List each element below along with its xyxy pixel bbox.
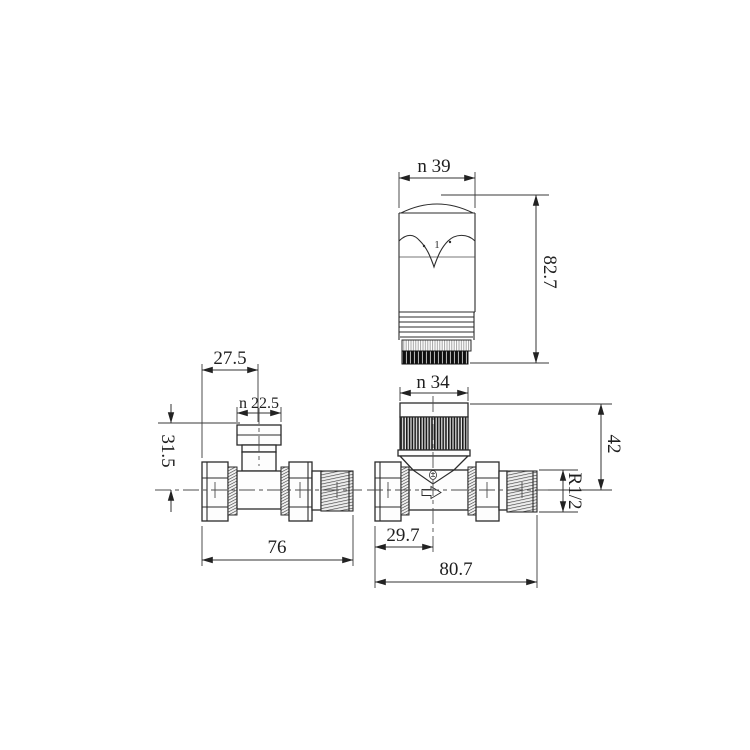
dim-collar-diameter: n 34 bbox=[400, 372, 468, 401]
dim-label-collar-diameter: n 34 bbox=[416, 372, 450, 393]
dim-label-body-offset: 29.7 bbox=[386, 525, 419, 546]
body-left-compression-ring bbox=[401, 467, 409, 515]
drawing-svg: 1 bbox=[0, 0, 750, 750]
dim-label-head-height: 82.7 bbox=[539, 255, 560, 288]
thermostatic-head: 1 bbox=[399, 204, 475, 364]
dim-label-tail-height: 31.5 bbox=[157, 434, 178, 467]
dim-head-diameter: n 39 bbox=[399, 156, 475, 208]
trv-body bbox=[375, 403, 537, 521]
head-setting-mark: 1 bbox=[434, 239, 440, 251]
dim-label-head-diameter: n 39 bbox=[417, 156, 450, 177]
head-grip-band bbox=[402, 340, 471, 351]
dim-lockshield-length: 76 bbox=[202, 515, 353, 566]
dimensions: n 39 82.7 n 34 42 R1/2 bbox=[157, 156, 624, 588]
lockshield-valve bbox=[202, 425, 353, 521]
head-black-knurl-ring bbox=[402, 351, 468, 364]
dim-label-lockshield-length: 76 bbox=[268, 537, 287, 558]
body-reducer bbox=[499, 471, 507, 510]
head-dot-right bbox=[449, 241, 451, 243]
dim-label-body-length: 80.7 bbox=[439, 559, 472, 580]
head-dome bbox=[401, 204, 473, 213]
lockshield-reducer bbox=[312, 471, 321, 510]
head-dot-left bbox=[423, 245, 425, 247]
dim-head-height: 82.7 bbox=[441, 195, 560, 363]
dim-label-tail-diameter: n 22.5 bbox=[239, 395, 279, 412]
dim-body-offset: 29.7 bbox=[375, 525, 433, 588]
body-right-hex-nut bbox=[476, 462, 499, 521]
collar-rim bbox=[400, 403, 468, 417]
collar-lip bbox=[398, 450, 470, 456]
body-right-compression-ring bbox=[468, 467, 476, 515]
body-funnel bbox=[400, 456, 468, 470]
dim-thread-size: R1/2 bbox=[539, 470, 585, 512]
lockshield-right-compression-ring bbox=[281, 467, 289, 515]
tail-stem bbox=[242, 452, 276, 471]
head-ribs bbox=[399, 312, 474, 340]
dim-label-body-height: 42 bbox=[603, 435, 624, 454]
dim-label-thread-size: R1/2 bbox=[564, 473, 585, 510]
lockshield-left-compression-ring bbox=[228, 467, 237, 515]
dim-label-lockshield-offset: 27.5 bbox=[213, 348, 246, 369]
collar-knurl bbox=[400, 417, 468, 450]
radiator-valve-technical-drawing: 1 bbox=[0, 0, 750, 750]
